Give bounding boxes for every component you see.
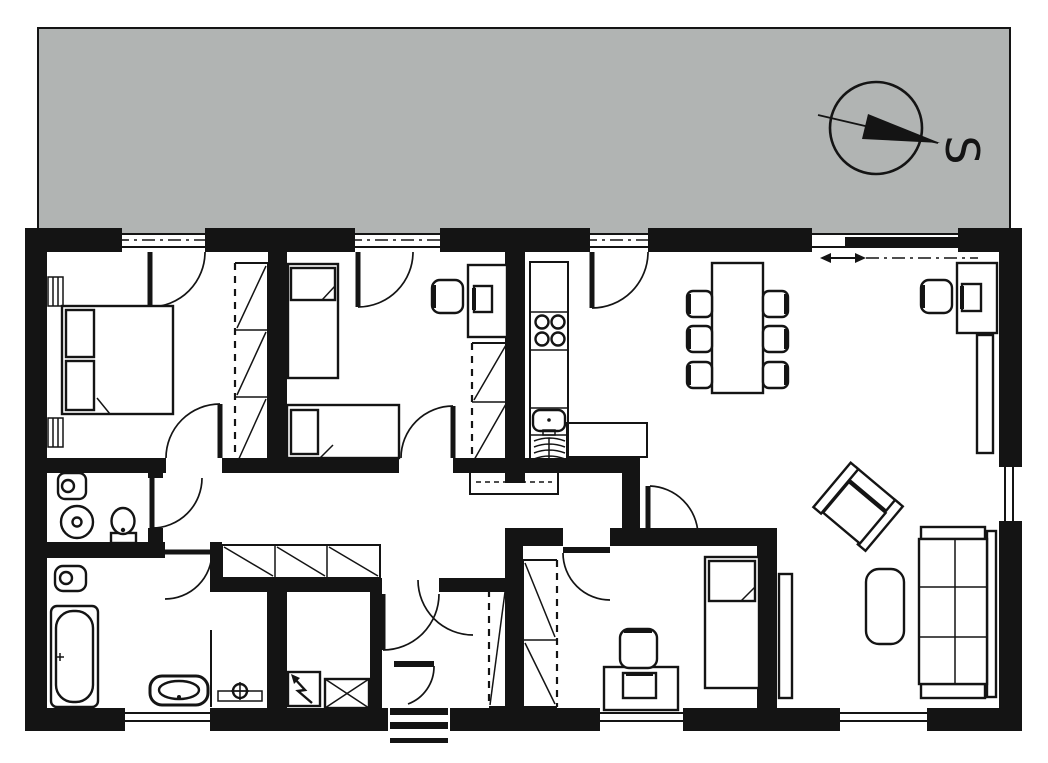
- radiator: [48, 418, 63, 447]
- wall-bed1-bed2: [268, 252, 287, 470]
- door-bedroom2: [401, 406, 453, 458]
- second-bedroom: [287, 264, 508, 462]
- dining-chairs-left: [687, 291, 712, 388]
- desk-chair: [432, 280, 463, 313]
- desk-bedroom2: [432, 265, 507, 337]
- sliding-direction-arrow: [820, 253, 866, 263]
- desk-bedroom3: [604, 629, 678, 710]
- door-hall-to-living: [648, 486, 698, 534]
- floor-plan-canvas: S: [0, 0, 1048, 763]
- master-bedroom: [48, 263, 268, 465]
- sideboard: [977, 335, 993, 453]
- dining-table: [712, 263, 763, 393]
- toilet: [111, 508, 136, 543]
- narrow-closet: [489, 590, 506, 707]
- dining-set: [687, 263, 788, 393]
- sliding-door-panel: [845, 237, 958, 246]
- bedroom3-closet: [523, 560, 557, 707]
- bathroom-window: [125, 708, 210, 731]
- door-wc: [152, 478, 202, 528]
- living-side-window: [999, 465, 1022, 523]
- dishwasher: [534, 438, 565, 460]
- front-door: [394, 664, 434, 704]
- kitchen-sink: [533, 410, 565, 435]
- desk-chair: [620, 629, 657, 668]
- bedroom3-window: [600, 708, 683, 731]
- wc-room: [58, 473, 136, 543]
- entrance-steps: [388, 708, 450, 743]
- utility-box: [325, 679, 369, 708]
- entrance-hall: [489, 590, 506, 707]
- armchair: [813, 463, 902, 551]
- washing-machine: [61, 506, 93, 538]
- hob-4-burners: [536, 316, 565, 346]
- door-hall-to-entrance: [383, 594, 439, 650]
- single-bed-horizontal: [287, 405, 399, 458]
- bath-hand-basin: [55, 566, 86, 591]
- left-wall: [25, 228, 47, 731]
- third-bedroom: [523, 557, 759, 710]
- terrace-door-kitchen: [592, 252, 648, 308]
- single-bed-bedroom3: [705, 557, 759, 688]
- desk-chair: [921, 280, 952, 313]
- terrace-door-bedroom1: [150, 252, 205, 307]
- door-bathroom: [165, 552, 212, 599]
- doors: [150, 252, 698, 704]
- sofa: [919, 527, 996, 698]
- kitchen-peninsula: [567, 423, 647, 457]
- dining-chairs-right: [763, 291, 788, 388]
- vanity-basin: [150, 676, 208, 705]
- terrace-door-bedroom2: [358, 252, 413, 307]
- door-bedroom3: [563, 550, 610, 600]
- living-room: [779, 263, 997, 698]
- compass-south-label: S: [935, 135, 989, 164]
- living-window: [840, 708, 927, 731]
- bathtub: [51, 606, 98, 707]
- coffee-table: [866, 569, 904, 644]
- floor-plan-page: S: [0, 0, 1048, 763]
- wardrobe-bedroom2: [472, 343, 508, 462]
- wardrobe-bedroom1: [235, 263, 268, 465]
- console-shelf: [779, 574, 792, 698]
- radiator: [48, 277, 63, 306]
- single-bed-vertical: [288, 264, 338, 378]
- electrical-cabinet: [288, 672, 320, 706]
- shower-fitting: [218, 682, 262, 701]
- desk-living: [921, 263, 997, 333]
- wc-hand-basin: [58, 473, 86, 499]
- hall-wardrobes: [222, 545, 380, 578]
- kitchen: [530, 262, 647, 462]
- technical-room: [288, 672, 369, 708]
